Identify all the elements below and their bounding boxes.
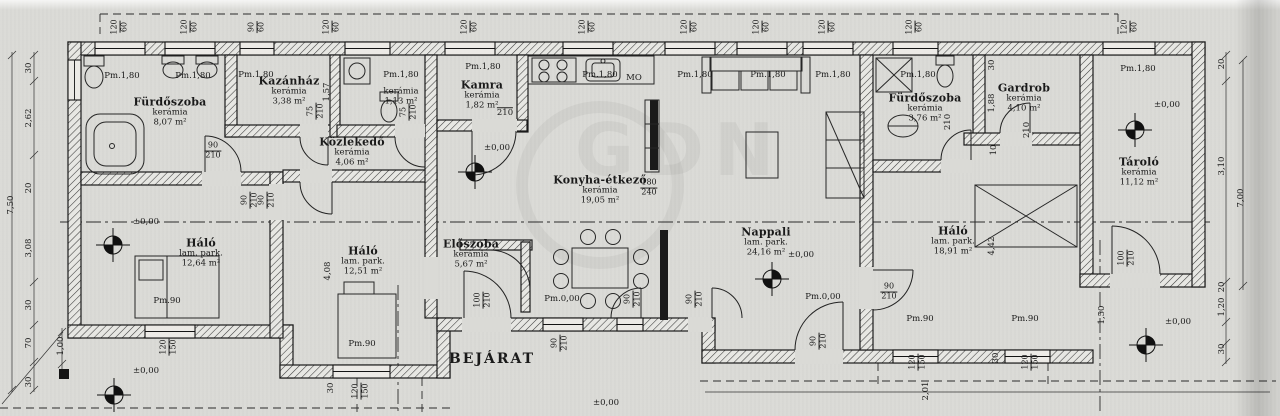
level-mark: ±0,00	[593, 399, 619, 409]
dim-label: 1,57	[323, 83, 333, 102]
window-size-label: 12060	[819, 18, 838, 35]
dim-total-label: 7,50	[7, 196, 17, 215]
dim-denominator: 210	[695, 290, 705, 307]
room-label-kamra: Kamrakerámia1,82 m²	[461, 79, 503, 110]
dim-numerator: 120	[909, 353, 918, 370]
pass-size-label: 180240	[640, 179, 657, 198]
window-size-label: 12060	[579, 18, 598, 35]
dim-label: 2,62	[25, 109, 35, 128]
door-size-label: 75210	[400, 103, 419, 120]
dim-denominator: 210	[880, 292, 897, 302]
dim-label: 30	[25, 63, 35, 74]
dim-denominator: 60	[257, 21, 267, 33]
dim-label: 1,20	[1218, 298, 1228, 317]
dim-label: 30	[25, 377, 35, 388]
dim-denominator: 60	[915, 21, 925, 33]
dim-numerator: 90	[624, 293, 633, 305]
dim-numerator: 120	[681, 18, 690, 35]
dim-numerator: 120	[181, 18, 190, 35]
dim-label: 30	[992, 353, 1002, 364]
room-label-halo-3: Hálólam. park.18,91 m²	[931, 225, 975, 256]
parapet-label: Pm.1,80	[1120, 65, 1155, 75]
parapet-label: Pm.1,80	[900, 71, 935, 81]
dim-denominator: 210	[633, 290, 643, 307]
dim-denominator: 60	[332, 21, 342, 33]
level-mark: ±0,00	[133, 367, 159, 377]
room-label-konyha-etkezo: Konyha-étkezőkerámia19,05 m²	[553, 174, 647, 205]
dim-label: 3,08	[25, 239, 35, 258]
dim-numerator: 75	[307, 105, 316, 117]
pass-height-label: 210	[497, 107, 513, 119]
door-size-label: 90210	[551, 334, 570, 351]
dim-numerator: 120	[1022, 353, 1031, 370]
parapet-label: Pm.0,00	[544, 295, 579, 305]
dim-numerator: 75	[400, 106, 409, 118]
dim-denominator: 60	[120, 21, 130, 33]
door-height-label: 210	[1023, 122, 1033, 138]
dim-denominator: 150	[918, 353, 928, 370]
window-size-label: 9060	[248, 21, 267, 33]
window-size-label: 120150	[352, 382, 371, 399]
room-label-eloszoba: Előszobakerámia5,67 m²	[443, 238, 499, 269]
parapet-label: Pm.90	[348, 340, 375, 350]
window-size-label: 120150	[909, 353, 928, 370]
door-size-label: 100210	[1118, 249, 1137, 266]
parapet-label: Pm.1,80	[815, 71, 850, 81]
room-label-furdoszoba-1: Fürdőszobakerámia8,07 m²	[133, 96, 206, 127]
dim-denominator: 240	[640, 188, 657, 198]
dim-label: 4,42	[988, 237, 998, 256]
toilet-icon	[84, 56, 104, 88]
window-size-label: 120150	[1022, 353, 1041, 370]
dim-denominator: 210	[819, 332, 829, 349]
dim-numerator: 90	[241, 194, 250, 206]
door-size-label: 75210	[307, 102, 326, 119]
floor-plan-page: GDN	[0, 0, 1280, 416]
dim-numerator: 120	[906, 18, 915, 35]
door-size-label: 90210	[686, 290, 705, 307]
dim-numerator: 120	[160, 338, 169, 355]
room-text: 11,12 m²	[1119, 178, 1159, 188]
parapet-label: Pm.90	[153, 297, 180, 307]
room-text: 5,67 m²	[443, 260, 499, 270]
dim-numerator: 120	[753, 18, 762, 35]
level-mark: ±0,00	[1154, 101, 1180, 111]
parapet-label: Pm.1,80	[238, 71, 273, 81]
room-text: 8,07 m²	[133, 118, 206, 128]
dim-denominator: 210	[204, 151, 221, 161]
parapet-label: Pm.1,80	[750, 71, 785, 81]
dim-label: 10	[990, 145, 1000, 156]
dim-label: 30	[988, 60, 998, 71]
dim-label: 30	[25, 300, 35, 311]
dim-numerator: 90	[883, 283, 895, 292]
parapet-label: Pm.1,80	[104, 72, 139, 82]
door-size-label: 90210	[624, 290, 643, 307]
dim-denominator: 210	[560, 334, 570, 351]
dim-denominator: 210	[1127, 249, 1137, 266]
dim-numerator: 120	[579, 18, 588, 35]
dim-label: 20	[1218, 282, 1228, 293]
window-size-label: 12060	[111, 18, 130, 35]
dim-numerator: 120	[111, 18, 120, 35]
room-text: 12,64 m²	[179, 259, 223, 269]
window-size-label: 12060	[753, 18, 772, 35]
parapet-label: Pm.1,80	[677, 71, 712, 81]
dim-denominator: 60	[190, 21, 200, 33]
dim-denominator: 150	[169, 338, 179, 355]
dim-numerator: 90	[686, 293, 695, 305]
dim-denominator: 60	[588, 21, 598, 33]
door-size-label: 90210	[258, 191, 277, 208]
dim-label: 1,50	[1098, 306, 1108, 325]
dim-label: 20	[25, 183, 35, 194]
dim-label: 20	[1218, 59, 1228, 70]
dim-numerator: 100	[474, 291, 483, 308]
room-label-halo-1: Hálólam. park.12,64 m²	[179, 237, 223, 268]
dim-denominator: 150	[361, 382, 371, 399]
room-label-kozlekedo: Közlekedőkerámia4,06 m²	[319, 136, 385, 167]
dim-denominator: 60	[1130, 21, 1140, 33]
dim-denominator: 60	[470, 21, 480, 33]
washing-machine-icon	[344, 58, 370, 84]
dim-denominator: 150	[1031, 353, 1041, 370]
dim-label: 1,88	[988, 94, 998, 113]
mo-label: MO	[626, 74, 642, 84]
shelf-unit-icon	[826, 112, 864, 198]
window-size-label: 12060	[181, 18, 200, 35]
level-mark: ±0,00	[133, 218, 159, 228]
entrance-label: BEJÁRAT	[449, 352, 535, 368]
room-text: 4,10 m²	[998, 104, 1050, 114]
parapet-label: Pm.90	[906, 315, 933, 325]
dim-denominator: 210	[483, 291, 493, 308]
coffee-table-icon	[746, 132, 778, 178]
parapet-label: Pm.1,80	[465, 63, 500, 73]
dim-numerator: 120	[461, 18, 470, 35]
room-text: 12,51 m²	[341, 267, 385, 277]
dim-label: 70	[25, 338, 35, 349]
door-size-label: 90210	[810, 332, 829, 349]
dim-denominator: 210	[409, 103, 419, 120]
dim-label: 4,08	[324, 262, 334, 281]
room-label-nappali: Nappalilam. park.24,16 m²	[741, 226, 790, 257]
dim-numerator: 120	[819, 18, 828, 35]
room-text: 19,05 m²	[553, 196, 647, 206]
boundary-marker	[59, 369, 69, 379]
window-size-label: 12060	[1121, 18, 1140, 35]
room-label-halo-2: Hálólam. park.12,51 m²	[341, 245, 385, 276]
dim-denominator: 60	[690, 21, 700, 33]
level-mark: ±0,00	[788, 251, 814, 261]
dim-numerator: 90	[258, 194, 267, 206]
dim-numerator: 120	[323, 18, 332, 35]
dim-numerator: 180	[640, 179, 657, 188]
window-size-label: 12060	[461, 18, 480, 35]
dim-numerator: 120	[1121, 18, 1130, 35]
door-size-label: 100210	[474, 291, 493, 308]
door-height-label: 210	[944, 114, 954, 130]
parapet-label: Pm.1,80	[175, 72, 210, 82]
parapet-label: Pm.90	[1011, 315, 1038, 325]
room-label-tarolo: Tárolókerámia11,12 m²	[1119, 156, 1159, 187]
dim-numerator: 90	[207, 142, 219, 151]
dim-denominator: 210	[316, 102, 326, 119]
dim-label: 30	[1218, 344, 1228, 355]
dim-numerator: 90	[551, 337, 560, 349]
door-size-label: 90210	[880, 283, 897, 302]
dim-denominator: 60	[828, 21, 838, 33]
dim-numerator: 90	[248, 21, 257, 33]
parapet-label: Pm.1,80	[582, 71, 617, 81]
dim-numerator: 100	[1118, 249, 1127, 266]
room-text: 18,91 m²	[931, 247, 975, 257]
room-text: 24,16 m²	[741, 248, 790, 258]
dim-denominator: 210	[267, 191, 277, 208]
toilet-icon	[936, 56, 954, 87]
dim-numerator: 90	[810, 335, 819, 347]
window-size-label: 12060	[323, 18, 342, 35]
dim-label: 30	[327, 383, 337, 394]
room-label-gardrob: Gardrobkerámia4,10 m²	[998, 82, 1050, 113]
dim-label: 3,10	[1218, 157, 1228, 176]
dim-numerator: 120	[352, 382, 361, 399]
stove-icon	[532, 58, 576, 82]
dim-label: 1,00	[57, 337, 67, 356]
parapet-label: Pm.1,80	[383, 71, 418, 81]
floor-plan-drawing	[0, 0, 1280, 416]
dim-label: 2,01	[922, 382, 932, 401]
dim-label: 7,00	[1237, 189, 1247, 208]
window-size-label: 12060	[906, 18, 925, 35]
level-mark: ±0,00	[484, 144, 510, 154]
window-size-label: 12060	[681, 18, 700, 35]
level-mark: ±0,00	[1165, 318, 1191, 328]
door-size-label: 90210	[204, 142, 221, 161]
parapet-label: Pm.0,00	[805, 293, 840, 303]
window-size-label: 120150	[160, 338, 179, 355]
room-text: 4,06 m²	[319, 158, 385, 168]
dim-denominator: 60	[762, 21, 772, 33]
